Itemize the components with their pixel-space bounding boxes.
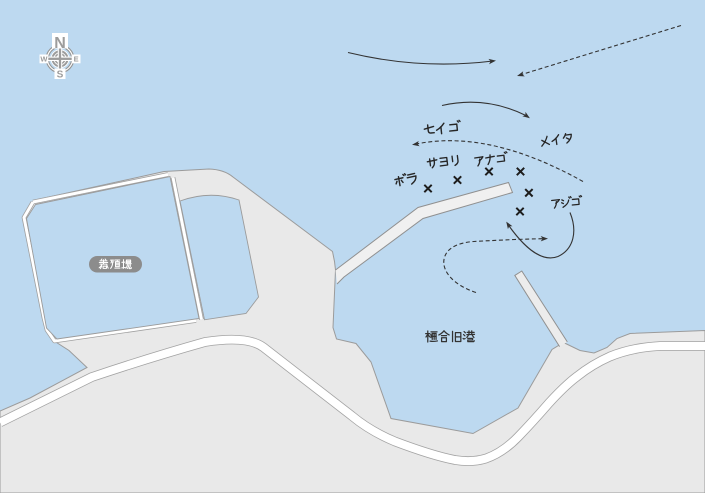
svg-text:E: E: [74, 55, 79, 64]
svg-text:N: N: [54, 35, 66, 52]
svg-text:S: S: [57, 70, 64, 81]
svg-text:W: W: [40, 55, 48, 64]
